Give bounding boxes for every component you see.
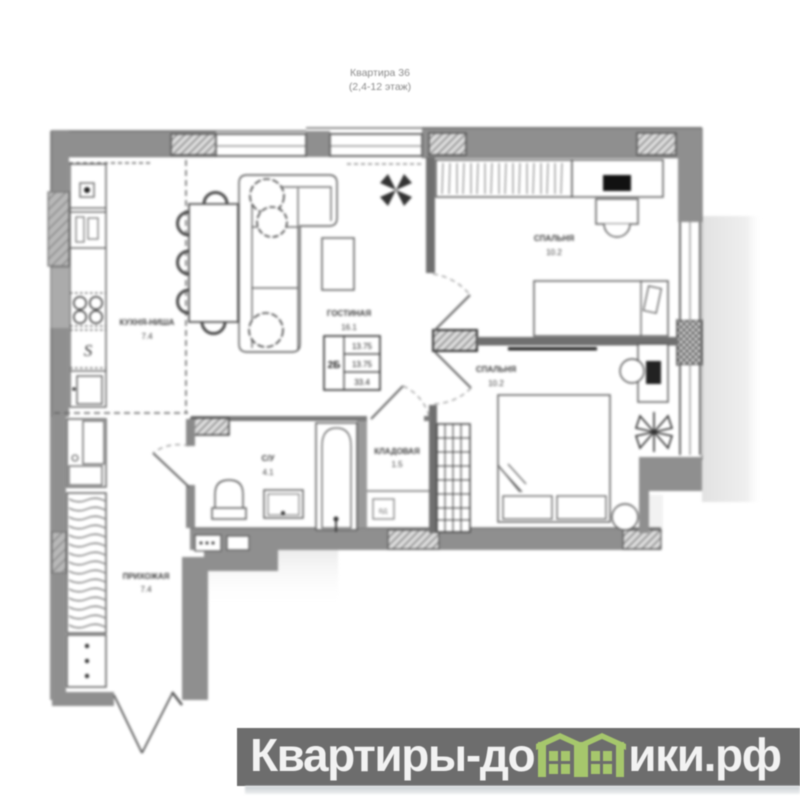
svg-text:16.1: 16.1 bbox=[341, 323, 357, 332]
svg-text:13.75: 13.75 bbox=[352, 342, 373, 351]
svg-text:S: S bbox=[84, 341, 93, 360]
svg-text:2Б: 2Б bbox=[328, 360, 341, 371]
svg-text:КЛАДОВАЯ: КЛАДОВАЯ bbox=[374, 447, 420, 456]
svg-text:СПАЛЬНЯ: СПАЛЬНЯ bbox=[534, 234, 575, 243]
svg-text:С/У: С/У bbox=[262, 454, 276, 463]
svg-text:33.4: 33.4 bbox=[354, 378, 370, 387]
svg-text:КУХНЯ-НИША: КУХНЯ-НИША bbox=[120, 318, 175, 327]
svg-text:10.2: 10.2 bbox=[488, 379, 504, 388]
svg-text:10.2: 10.2 bbox=[546, 248, 562, 257]
svg-text:СПАЛЬНЯ: СПАЛЬНЯ bbox=[476, 365, 517, 374]
svg-text:ПРИХОЖАЯ: ПРИХОЖАЯ bbox=[123, 572, 170, 581]
svg-text:1.5: 1.5 bbox=[391, 460, 403, 469]
svg-text:ГОСТИНАЯ: ГОСТИНАЯ bbox=[327, 309, 371, 318]
svg-text:7.4: 7.4 bbox=[141, 332, 153, 341]
svg-text:13.75: 13.75 bbox=[352, 360, 373, 369]
svg-text:7.4: 7.4 bbox=[140, 585, 152, 594]
svg-text:4.1: 4.1 bbox=[262, 468, 274, 477]
svg-text:ВД: ВД bbox=[379, 508, 388, 515]
